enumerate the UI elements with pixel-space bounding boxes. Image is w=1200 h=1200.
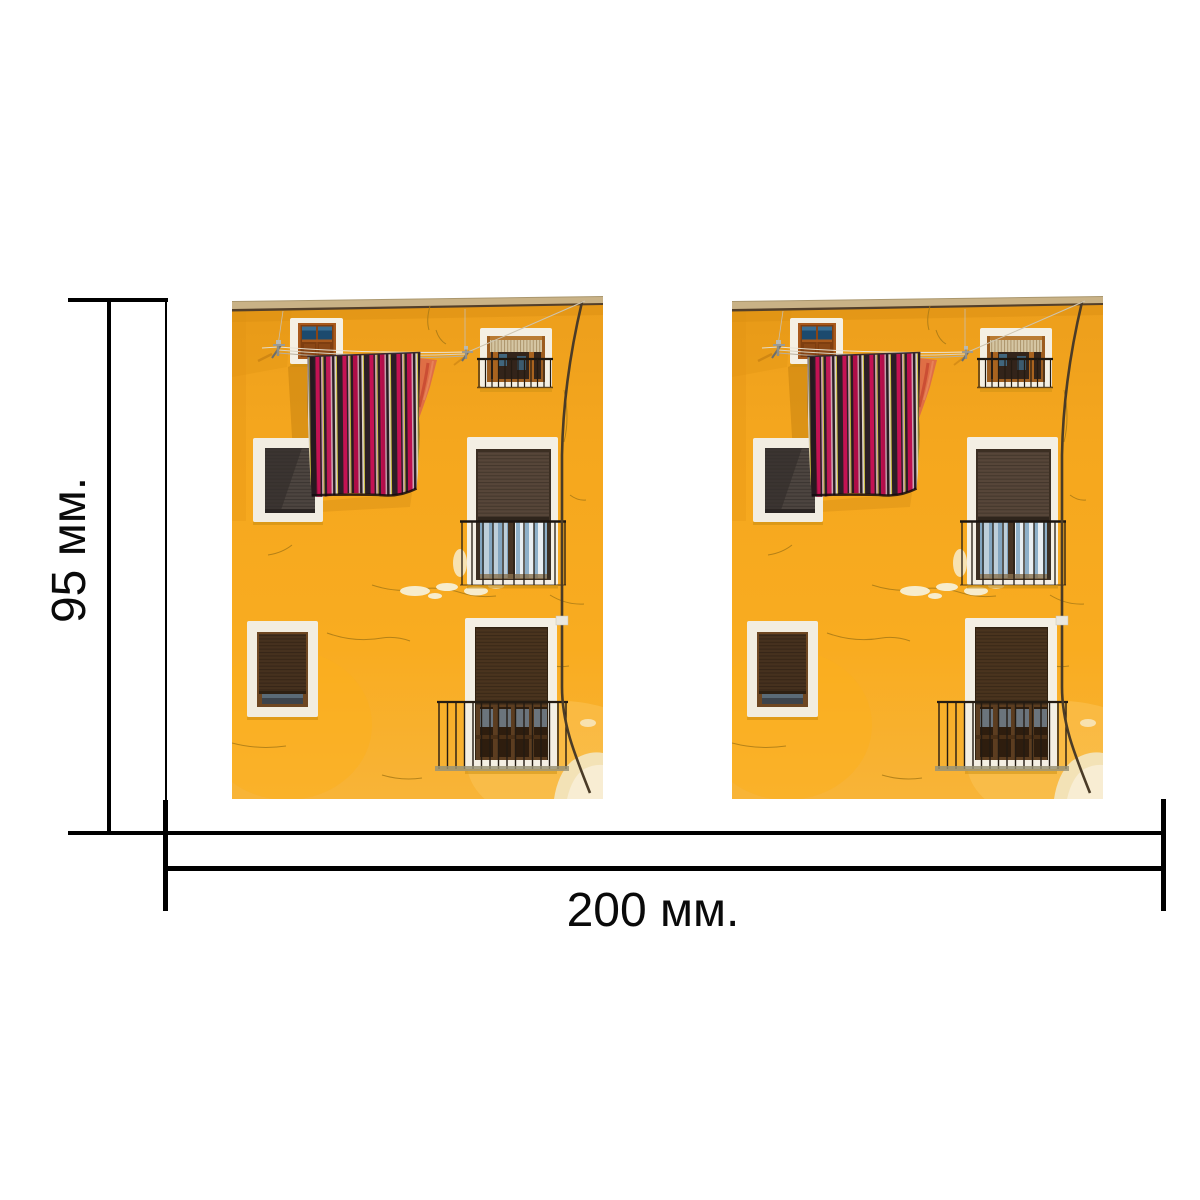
facade-photo-right	[732, 295, 1103, 799]
width-dimension-label: 200 мм.	[503, 885, 803, 937]
width-dimension-line	[165, 866, 1166, 871]
width-left-tick	[163, 800, 168, 911]
facade-photo-left-image	[232, 295, 603, 799]
facade-photo-right-image	[732, 295, 1103, 799]
height-extension-line	[165, 300, 167, 803]
height-dimension-label: 95 мм.	[44, 440, 96, 660]
facade-photo-left	[232, 295, 603, 799]
baseline-extension-line	[68, 831, 1166, 835]
height-dimension-line	[107, 300, 111, 833]
print-size-diagram: 95 мм. 200 мм.	[0, 0, 1200, 1200]
width-right-tick	[1161, 799, 1166, 911]
height-top-tick	[68, 298, 168, 302]
